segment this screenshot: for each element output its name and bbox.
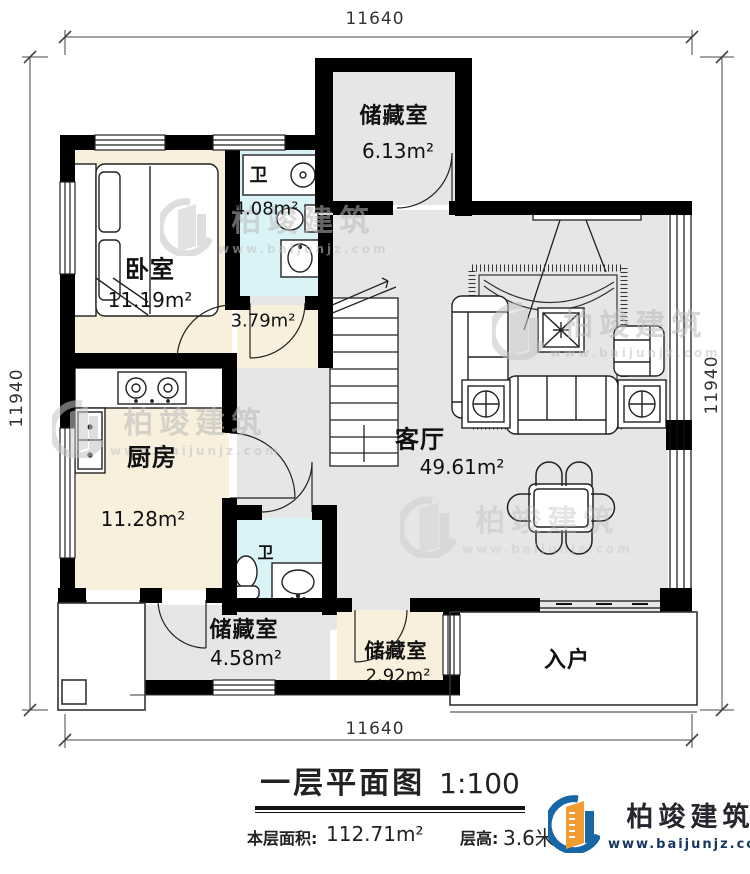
room-label-living: 客厅 (395, 420, 445, 455)
room-label-kitchen: 厨房 (127, 438, 177, 473)
dimension-right: 11940 (702, 355, 722, 414)
room-area-kitchen: 11.28m² (101, 507, 186, 531)
room-label-bath1: 卫 (250, 161, 269, 187)
company-url: www.baijunjz.com (608, 837, 750, 852)
room-area-storage-left: 4.58m² (210, 646, 282, 670)
room-area-bath1: 4.08m² (234, 199, 299, 220)
floor-plan-sheet: 柏竣建筑 www.baijunjz.com 柏竣建筑 www.baijunjz.… (0, 0, 750, 874)
room-area-living: 49.61m² (420, 455, 505, 479)
room-area-bedroom: 11.19m² (108, 288, 193, 312)
bath2-fixtures (234, 556, 324, 600)
title-underline-thin (255, 812, 525, 813)
room-area-hall: 3.79m² (231, 311, 296, 332)
stairs (330, 278, 398, 466)
floor-area-value: 112.71m² (326, 822, 423, 846)
title-underline (255, 806, 525, 810)
company-name: 柏竣建筑 (626, 795, 750, 834)
sheet-scale: 1:100 (439, 767, 520, 800)
floor-area-label: 本层面积: (247, 825, 317, 849)
room-label-storage-right: 储藏室 (365, 635, 428, 664)
room-label-storage-top: 储藏室 (359, 98, 428, 130)
floor-plan-drawing (0, 0, 750, 874)
coffee-table (538, 308, 584, 352)
room-label-bath2: 卫 (257, 539, 274, 563)
dimension-bottom: 11640 (345, 719, 404, 739)
room-label-bedroom: 卧室 (125, 250, 175, 285)
dimension-left: 11940 (7, 368, 27, 427)
floor-height-label: 层高: (460, 825, 498, 849)
dimension-top: 11640 (345, 9, 404, 29)
title-block: 一层平面图 1:100 (255, 758, 525, 813)
sheet-title: 一层平面图 (260, 758, 425, 802)
company-logo: 柏竣建筑 www.baijunjz.com (548, 793, 750, 853)
room-area-storage-top: 6.13m² (362, 139, 434, 163)
room-label-entry: 入户 (544, 642, 590, 674)
room-area-storage-right: 2.92m² (366, 666, 431, 687)
company-logo-icon (548, 793, 600, 853)
room-label-storage-left: 储藏室 (209, 612, 278, 644)
